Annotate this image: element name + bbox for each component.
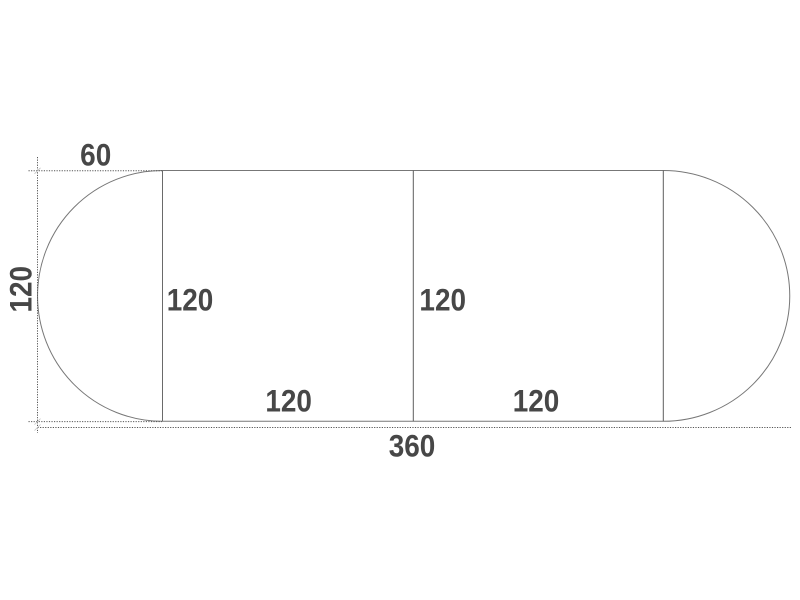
svg-text:120: 120 bbox=[4, 266, 39, 313]
svg-text:60: 60 bbox=[80, 138, 111, 173]
svg-text:120: 120 bbox=[513, 384, 560, 419]
svg-text:120: 120 bbox=[419, 283, 466, 318]
svg-text:120: 120 bbox=[167, 283, 214, 318]
svg-text:120: 120 bbox=[265, 384, 312, 419]
svg-text:360: 360 bbox=[389, 429, 436, 464]
